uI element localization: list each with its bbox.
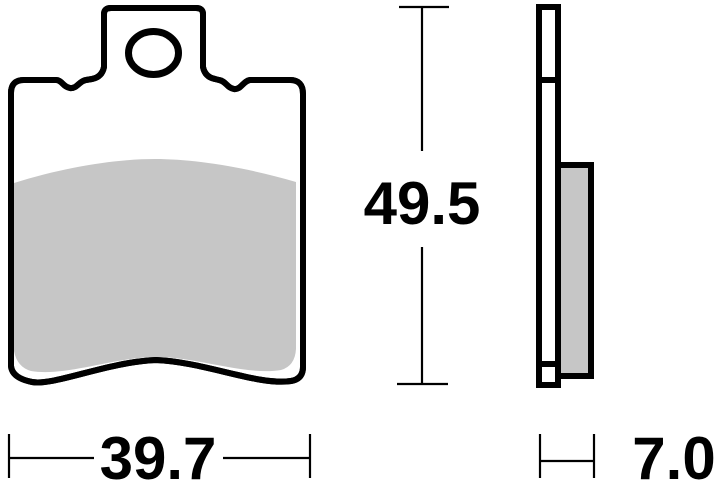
diagram-canvas: 39.7 49.5 7.0	[0, 0, 720, 484]
side-view	[536, 7, 591, 385]
friction-material-front	[14, 159, 296, 372]
thickness-dimension-label: 7.0	[632, 425, 715, 484]
backplate-side	[539, 7, 558, 385]
friction-material-side	[558, 165, 591, 376]
brake-pad-technical-drawing: 39.7 49.5 7.0	[0, 0, 720, 484]
height-dimension-label: 49.5	[364, 170, 481, 237]
height-dimension: 49.5	[364, 7, 481, 384]
width-dimension: 39.7	[9, 425, 310, 484]
thickness-dimension: 7.0	[540, 425, 716, 484]
mounting-hole	[129, 32, 179, 75]
front-view	[11, 8, 303, 382]
width-dimension-label: 39.7	[100, 425, 217, 484]
